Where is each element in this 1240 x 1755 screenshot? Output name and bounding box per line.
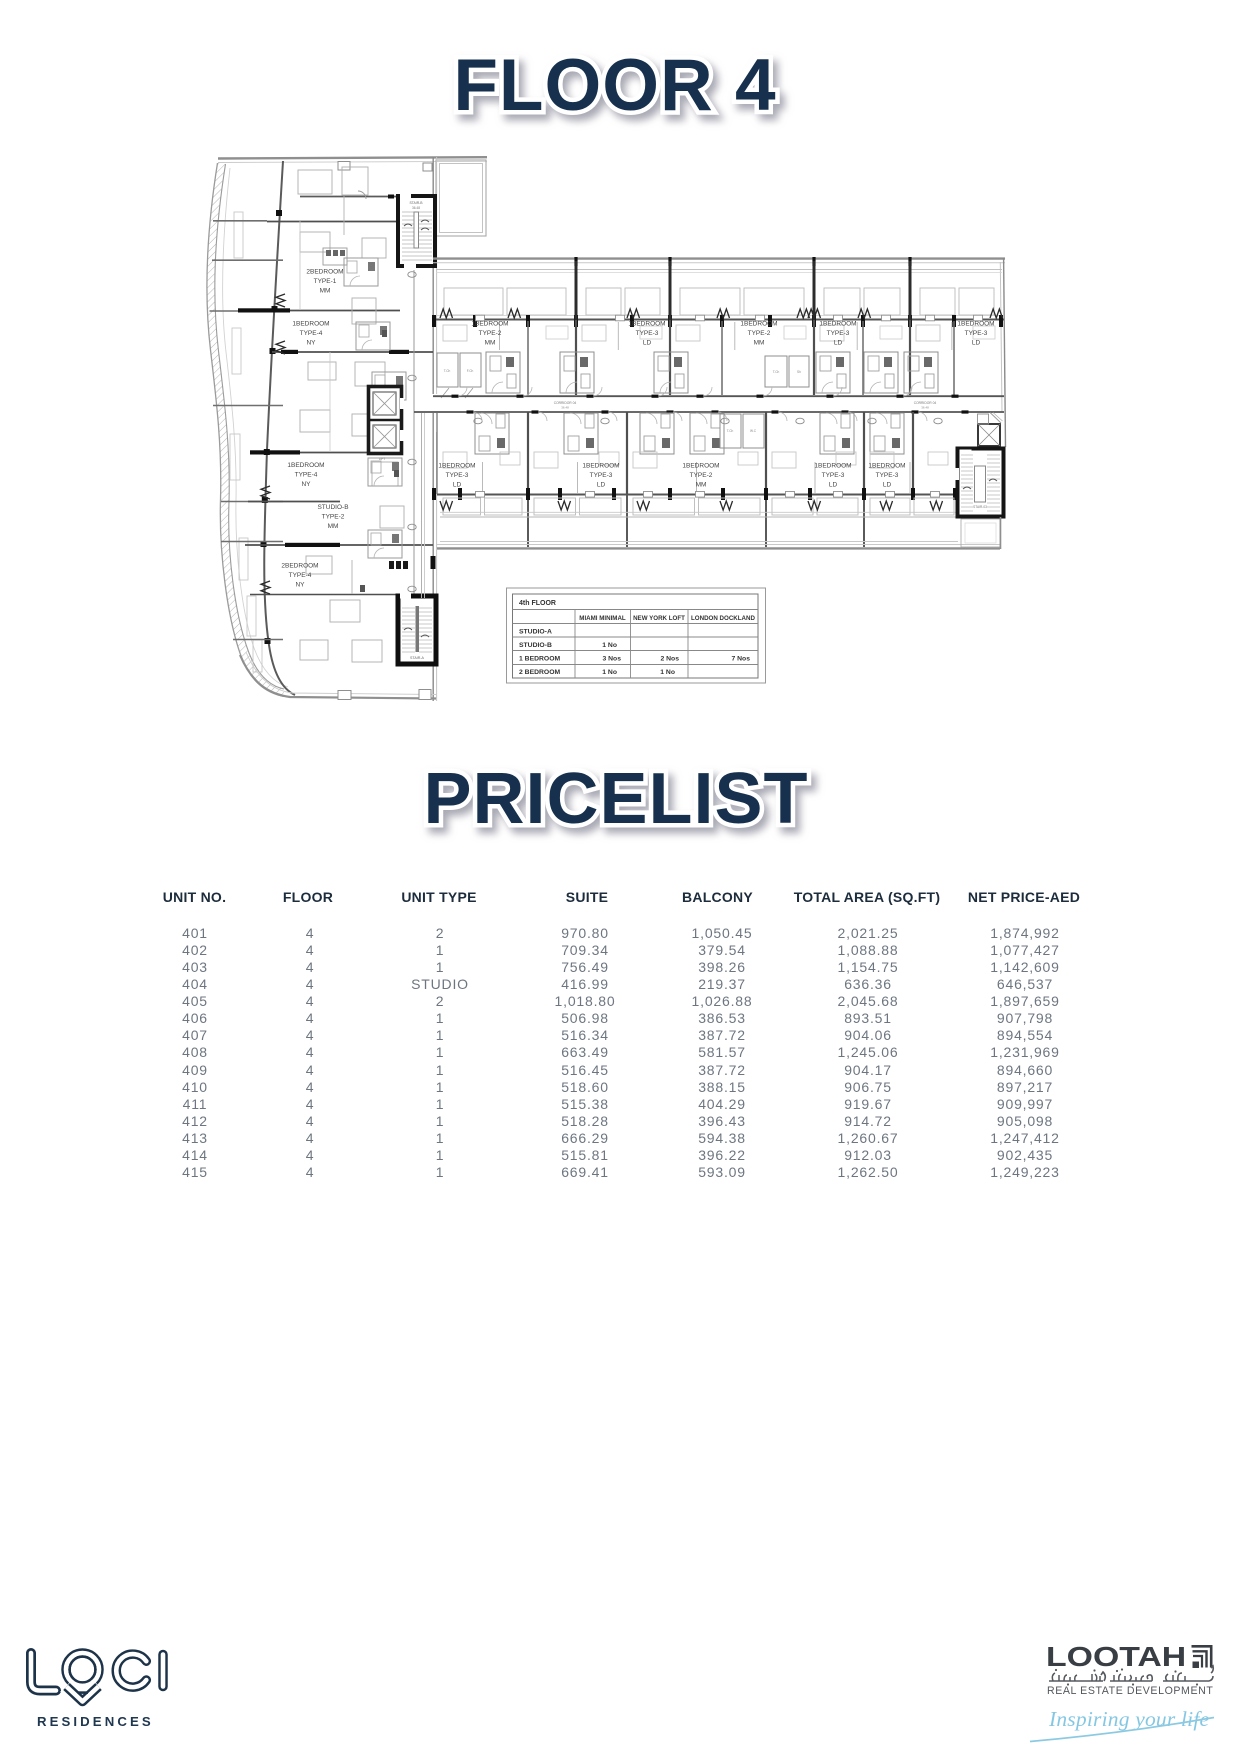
- svg-text:T.Ch: T.Ch: [444, 369, 451, 373]
- svg-text:NY: NY: [306, 339, 316, 346]
- svg-text:STUDIO-B: STUDIO-B: [519, 642, 552, 649]
- svg-text:STUDIO-A: STUDIO-A: [519, 629, 552, 636]
- svg-text:MM: MM: [754, 339, 765, 346]
- svg-text:CORRIDOR 04: CORRIDOR 04: [914, 401, 937, 405]
- svg-text:TYPE-3: TYPE-3: [876, 472, 899, 479]
- svg-text:Sh: Sh: [797, 370, 801, 374]
- svg-text:TYPE-4: TYPE-4: [289, 572, 312, 579]
- svg-text:2 BEDROOM: 2 BEDROOM: [519, 669, 561, 676]
- svg-text:TYPE-3: TYPE-3: [636, 330, 659, 337]
- svg-text:1 BEDROOM: 1 BEDROOM: [519, 656, 561, 663]
- svg-text:LD: LD: [972, 339, 981, 346]
- svg-text:1BEDROOM: 1BEDROOM: [814, 463, 851, 470]
- svg-text:1 No: 1 No: [602, 669, 617, 676]
- svg-text:MM: MM: [320, 287, 331, 294]
- svg-text:3 Nos: 3 Nos: [602, 656, 621, 663]
- svg-text:CORRIDOR 04: CORRIDOR 04: [554, 401, 577, 405]
- svg-text:NY: NY: [295, 581, 305, 588]
- svg-text:1BEDROOM: 1BEDROOM: [819, 321, 856, 328]
- svg-text:TYPE-3: TYPE-3: [446, 472, 469, 479]
- svg-text:1BEDROOM: 1BEDROOM: [868, 463, 905, 470]
- svg-text:TYPE-2: TYPE-2: [690, 472, 713, 479]
- svg-text:MM: MM: [485, 339, 496, 346]
- svg-text:1BEDROOM: 1BEDROOM: [292, 321, 329, 328]
- svg-text:STAIR-03: STAIR-03: [973, 505, 987, 509]
- svg-text:1BEDROOM: 1BEDROOM: [471, 321, 508, 328]
- svg-text:2BEDROOM: 2BEDROOM: [306, 269, 343, 276]
- svg-text:2 Nos: 2 Nos: [660, 656, 679, 663]
- svg-text:LD: LD: [453, 481, 462, 488]
- svg-text:LD: LD: [883, 481, 892, 488]
- svg-text:TYPE-4: TYPE-4: [300, 330, 323, 337]
- svg-text:TYPE-2: TYPE-2: [322, 513, 345, 520]
- svg-text:MIAMI MINIMAL: MIAMI MINIMAL: [579, 615, 626, 622]
- svg-text:2BEDROOM: 2BEDROOM: [281, 563, 318, 570]
- svg-text:1BEDROOM: 1BEDROOM: [682, 463, 719, 470]
- svg-text:STAIR-B: STAIR-B: [409, 201, 423, 205]
- svg-text:TYPE-2: TYPE-2: [748, 330, 771, 337]
- svg-text:1BEDROOM: 1BEDROOM: [582, 463, 619, 470]
- svg-text:MM: MM: [328, 523, 339, 530]
- svg-text:F.Ch: F.Ch: [467, 369, 474, 373]
- svg-text:1BEDROOM: 1BEDROOM: [287, 462, 324, 469]
- svg-text:TYPE-3: TYPE-3: [965, 330, 988, 337]
- svg-text:7 Nos: 7 Nos: [731, 656, 750, 663]
- svg-text:NEW YORK LOFT: NEW YORK LOFT: [633, 615, 685, 622]
- svg-text:T.Ch: T.Ch: [727, 429, 734, 433]
- svg-text:36.48: 36.48: [921, 406, 929, 410]
- svg-text:LD: LD: [597, 481, 606, 488]
- svg-text:LIFT: LIFT: [379, 457, 386, 461]
- svg-text:36.48: 36.48: [412, 206, 420, 210]
- svg-text:36.48: 36.48: [561, 406, 569, 410]
- svg-text:1BEDROOM: 1BEDROOM: [438, 463, 475, 470]
- svg-text:1BEDROOM: 1BEDROOM: [740, 321, 777, 328]
- svg-text:LD: LD: [829, 481, 838, 488]
- svg-text:TYPE-4: TYPE-4: [295, 471, 318, 478]
- svg-text:LD: LD: [643, 339, 652, 346]
- svg-text:TYPE-1: TYPE-1: [314, 278, 337, 285]
- svg-text:MM: MM: [696, 481, 707, 488]
- svg-text:T.Ch: T.Ch: [773, 370, 780, 374]
- svg-text:RESIDENCES: RESIDENCES: [37, 1714, 154, 1729]
- svg-text:TYPE-3: TYPE-3: [590, 472, 613, 479]
- svg-text:LD: LD: [834, 339, 843, 346]
- svg-text:LOOTAH: LOOTAH: [1046, 1641, 1186, 1672]
- svg-text:1BEDROOM: 1BEDROOM: [628, 321, 665, 328]
- svg-text:TYPE-2: TYPE-2: [479, 330, 502, 337]
- svg-text:STAIR-A: STAIR-A: [410, 656, 425, 660]
- svg-text:TYPE-3: TYPE-3: [822, 472, 845, 479]
- svg-text:Inspiring your life: Inspiring your life: [1048, 1707, 1210, 1731]
- svg-text:TYPE-3: TYPE-3: [827, 330, 850, 337]
- svg-text:W.C: W.C: [750, 429, 757, 433]
- svg-text:STUDIO-B: STUDIO-B: [317, 504, 348, 511]
- svg-text:4th FLOOR: 4th FLOOR: [519, 600, 556, 607]
- svg-text:1BEDROOM: 1BEDROOM: [957, 321, 994, 328]
- svg-text:1 No: 1 No: [660, 669, 675, 676]
- svg-text:REAL ESTATE DEVELOPMENT: REAL ESTATE DEVELOPMENT: [1047, 1685, 1214, 1697]
- svg-text:1 No: 1 No: [602, 642, 617, 649]
- svg-text:LONDON DOCKLAND: LONDON DOCKLAND: [691, 615, 755, 622]
- svg-text:NY: NY: [301, 481, 311, 488]
